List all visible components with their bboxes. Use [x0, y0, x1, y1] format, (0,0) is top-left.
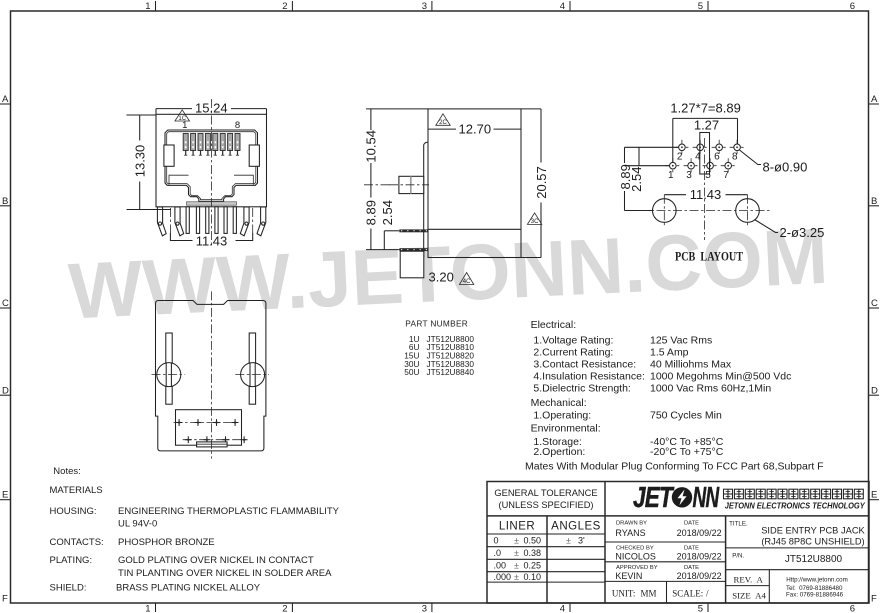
svg-text:NICOLOS: NICOLOS: [615, 552, 656, 562]
svg-text:2: 2: [282, 1, 287, 12]
svg-text:2.54: 2.54: [629, 167, 644, 192]
svg-text:REV. A: REV. A: [734, 575, 764, 585]
svg-text:2C: 2C: [439, 120, 447, 126]
svg-text:DRAWN BY: DRAWN BY: [616, 521, 647, 527]
svg-text:1: 1: [668, 170, 674, 181]
svg-text:2-ø3.25: 2-ø3.25: [780, 225, 825, 240]
svg-text:5: 5: [705, 170, 711, 181]
svg-text:4: 4: [560, 604, 565, 613]
svg-text:JET: JET: [633, 482, 675, 514]
svg-text:.000: .000: [494, 572, 512, 582]
svg-text:UNIT:: UNIT:: [612, 589, 636, 599]
svg-text:1.Voltage Rating:: 1.Voltage Rating:: [533, 335, 613, 347]
svg-text:1000 Megohms Min@500 Vdc: 1000 Megohms Min@500 Vdc: [650, 371, 791, 383]
svg-text:Electrical:: Electrical:: [531, 319, 577, 331]
svg-text:50U: 50U: [404, 367, 419, 377]
svg-text:GOLD PLATING OVER NICKEL IN CO: GOLD PLATING OVER NICKEL IN CONTACT: [118, 555, 314, 566]
svg-text:15.24: 15.24: [195, 100, 228, 115]
svg-text:125 Vac Rms: 125 Vac Rms: [650, 335, 712, 347]
svg-text:SCALE:: SCALE:: [672, 589, 703, 599]
svg-text:E: E: [2, 490, 8, 501]
svg-text:0: 0: [494, 536, 499, 546]
svg-text:8-ø0.90: 8-ø0.90: [763, 160, 808, 175]
svg-text:20.57: 20.57: [534, 166, 549, 199]
svg-text:MM: MM: [641, 589, 657, 599]
svg-text:TITLE.: TITLE.: [729, 521, 748, 528]
svg-text:±: ±: [566, 536, 571, 546]
svg-text:E: E: [871, 490, 877, 501]
svg-text:D: D: [871, 386, 878, 397]
svg-text:JT512U8840: JT512U8840: [427, 367, 475, 377]
svg-text:KEVIN: KEVIN: [615, 571, 642, 581]
svg-text:0.50: 0.50: [523, 536, 541, 546]
svg-text:1: 1: [182, 120, 187, 131]
svg-text:1.Operating:: 1.Operating:: [533, 410, 591, 422]
svg-text:GENERAL TOLERANCE: GENERAL TOLERANCE: [494, 488, 597, 498]
svg-text:DATE: DATE: [684, 521, 699, 527]
svg-text:C: C: [871, 298, 878, 309]
svg-text:3.Contact Resistance:: 3.Contact Resistance:: [533, 359, 636, 371]
svg-text:2.Opertion:: 2.Opertion:: [533, 446, 585, 458]
svg-text:Http://www.jetonn.com: Http://www.jetonn.com: [786, 577, 848, 584]
svg-text:P/N.: P/N.: [732, 553, 744, 560]
svg-text:SIZE A4: SIZE A4: [732, 591, 766, 601]
svg-text:Environmental:: Environmental:: [531, 422, 601, 434]
svg-text:10.54: 10.54: [364, 130, 379, 163]
svg-text:8: 8: [235, 120, 240, 131]
svg-text:1.27: 1.27: [694, 118, 719, 133]
svg-text:UL 94V-0: UL 94V-0: [118, 519, 157, 530]
svg-text:HOUSING:: HOUSING:: [50, 506, 97, 517]
svg-text:13.30: 13.30: [132, 145, 147, 178]
svg-text:F: F: [2, 594, 8, 605]
svg-text:1.27*7=8.89: 1.27*7=8.89: [670, 100, 740, 115]
svg-text:750 Cycles Min: 750 Cycles Min: [650, 410, 722, 422]
svg-text:SHIELD:: SHIELD:: [50, 583, 87, 594]
svg-text:0.10: 0.10: [523, 572, 541, 582]
svg-text:3: 3: [422, 604, 427, 613]
svg-text:40 Milliohms Max: 40 Milliohms Max: [650, 359, 732, 371]
svg-text:8.89: 8.89: [364, 200, 379, 225]
svg-text:3C: 3C: [531, 219, 539, 225]
svg-text:11.43: 11.43: [690, 187, 722, 202]
svg-text:RYANS: RYANS: [615, 528, 645, 538]
svg-text:NN: NN: [693, 482, 721, 514]
svg-text:6: 6: [850, 1, 855, 12]
svg-text:F: F: [871, 594, 877, 605]
svg-text:Mechanical:: Mechanical:: [531, 397, 587, 409]
svg-text:7: 7: [723, 170, 729, 181]
svg-text:3: 3: [686, 170, 692, 181]
svg-text:CONTACTS:: CONTACTS:: [50, 537, 104, 548]
svg-text:PART NUMBER: PART NUMBER: [405, 319, 468, 329]
svg-text:A: A: [2, 94, 9, 105]
svg-text:2.Current Rating:: 2.Current Rating:: [533, 347, 613, 359]
svg-text:8: 8: [732, 152, 738, 163]
svg-text:4C: 4C: [463, 279, 471, 285]
svg-text:MATERIALS: MATERIALS: [50, 485, 103, 496]
svg-text:B: B: [871, 196, 877, 207]
svg-text:C: C: [2, 298, 9, 309]
svg-text:Fax: 0769-81886946: Fax: 0769-81886946: [786, 592, 844, 599]
svg-text:PLATING:: PLATING:: [50, 555, 93, 566]
svg-text:Notes:: Notes:: [53, 466, 80, 477]
svg-text:11.43: 11.43: [196, 233, 228, 248]
svg-text:±: ±: [514, 561, 519, 571]
svg-text:(UNLESS SPECIFIED): (UNLESS SPECIFIED): [498, 500, 593, 510]
svg-text:2: 2: [677, 152, 683, 163]
svg-text:2018/09/22: 2018/09/22: [677, 571, 722, 581]
svg-text:2: 2: [282, 604, 287, 613]
svg-text:ANGLES: ANGLES: [551, 521, 601, 533]
svg-text:3': 3': [578, 536, 585, 546]
svg-text:BRASS PLATING NICKEL ALLOY: BRASS PLATING NICKEL ALLOY: [116, 583, 261, 594]
svg-text:0.25: 0.25: [523, 561, 541, 571]
svg-text:ENGINEERING THERMOPLASTIC FLAM: ENGINEERING THERMOPLASTIC FLAMMABILITY: [118, 506, 340, 517]
svg-text:±: ±: [514, 548, 519, 558]
svg-text:6: 6: [850, 604, 855, 613]
svg-text:4.Insulation Resistance:: 4.Insulation Resistance:: [533, 371, 644, 383]
svg-text:±: ±: [514, 536, 519, 546]
svg-text:.0: .0: [494, 548, 502, 558]
svg-text:D: D: [2, 386, 9, 397]
svg-text:PHOSPHOR BRONZE: PHOSPHOR BRONZE: [118, 537, 215, 548]
svg-text:5.Dielectric Strength:: 5.Dielectric Strength:: [533, 383, 630, 395]
svg-text:4: 4: [560, 1, 565, 12]
svg-text:(RJ45 8P8C UNSHIELD): (RJ45 8P8C UNSHIELD): [761, 537, 864, 547]
svg-text:1000 Vac Rms 60Hz,1Min: 1000 Vac Rms 60Hz,1Min: [650, 383, 771, 395]
svg-text:PCB LAYOUT: PCB LAYOUT: [675, 250, 744, 264]
svg-text:Mates With Modular Plug Confor: Mates With Modular Plug Conforming To FC…: [525, 461, 824, 473]
svg-text:±: ±: [514, 572, 519, 582]
svg-text:B: B: [2, 196, 8, 207]
svg-text:SIDE ENTRY PCB JACK: SIDE ENTRY PCB JACK: [761, 526, 865, 536]
svg-text:2018/09/22: 2018/09/22: [677, 528, 722, 538]
svg-text:3.20: 3.20: [429, 270, 454, 285]
svg-text:6: 6: [714, 152, 720, 163]
svg-text:12.70: 12.70: [459, 122, 492, 137]
svg-text:-20°C To +75°C: -20°C To +75°C: [650, 446, 724, 458]
svg-text:1: 1: [145, 1, 150, 12]
svg-text:LINER: LINER: [499, 521, 535, 533]
svg-text:5: 5: [698, 604, 703, 613]
svg-text:0.38: 0.38: [523, 548, 541, 558]
svg-text:TIN PLANTING OVER NICKEL IN SO: TIN PLANTING OVER NICKEL IN SOLDER AREA: [118, 568, 332, 579]
svg-text:2.54: 2.54: [380, 200, 395, 225]
svg-text:5: 5: [698, 1, 703, 12]
svg-text:3: 3: [422, 1, 427, 12]
svg-text:2018/09/22: 2018/09/22: [677, 552, 722, 562]
svg-text:1C: 1C: [178, 116, 186, 122]
svg-text:1.5 Amp: 1.5 Amp: [650, 347, 689, 359]
svg-text:.00: .00: [494, 561, 507, 571]
svg-text:1: 1: [145, 604, 150, 613]
svg-text:JT512U8800: JT512U8800: [785, 554, 843, 565]
svg-text:JETONN ELECTRONICS TECHNOLOGY: JETONN ELECTRONICS TECHNOLOGY: [725, 502, 866, 511]
svg-text:A: A: [871, 94, 878, 105]
